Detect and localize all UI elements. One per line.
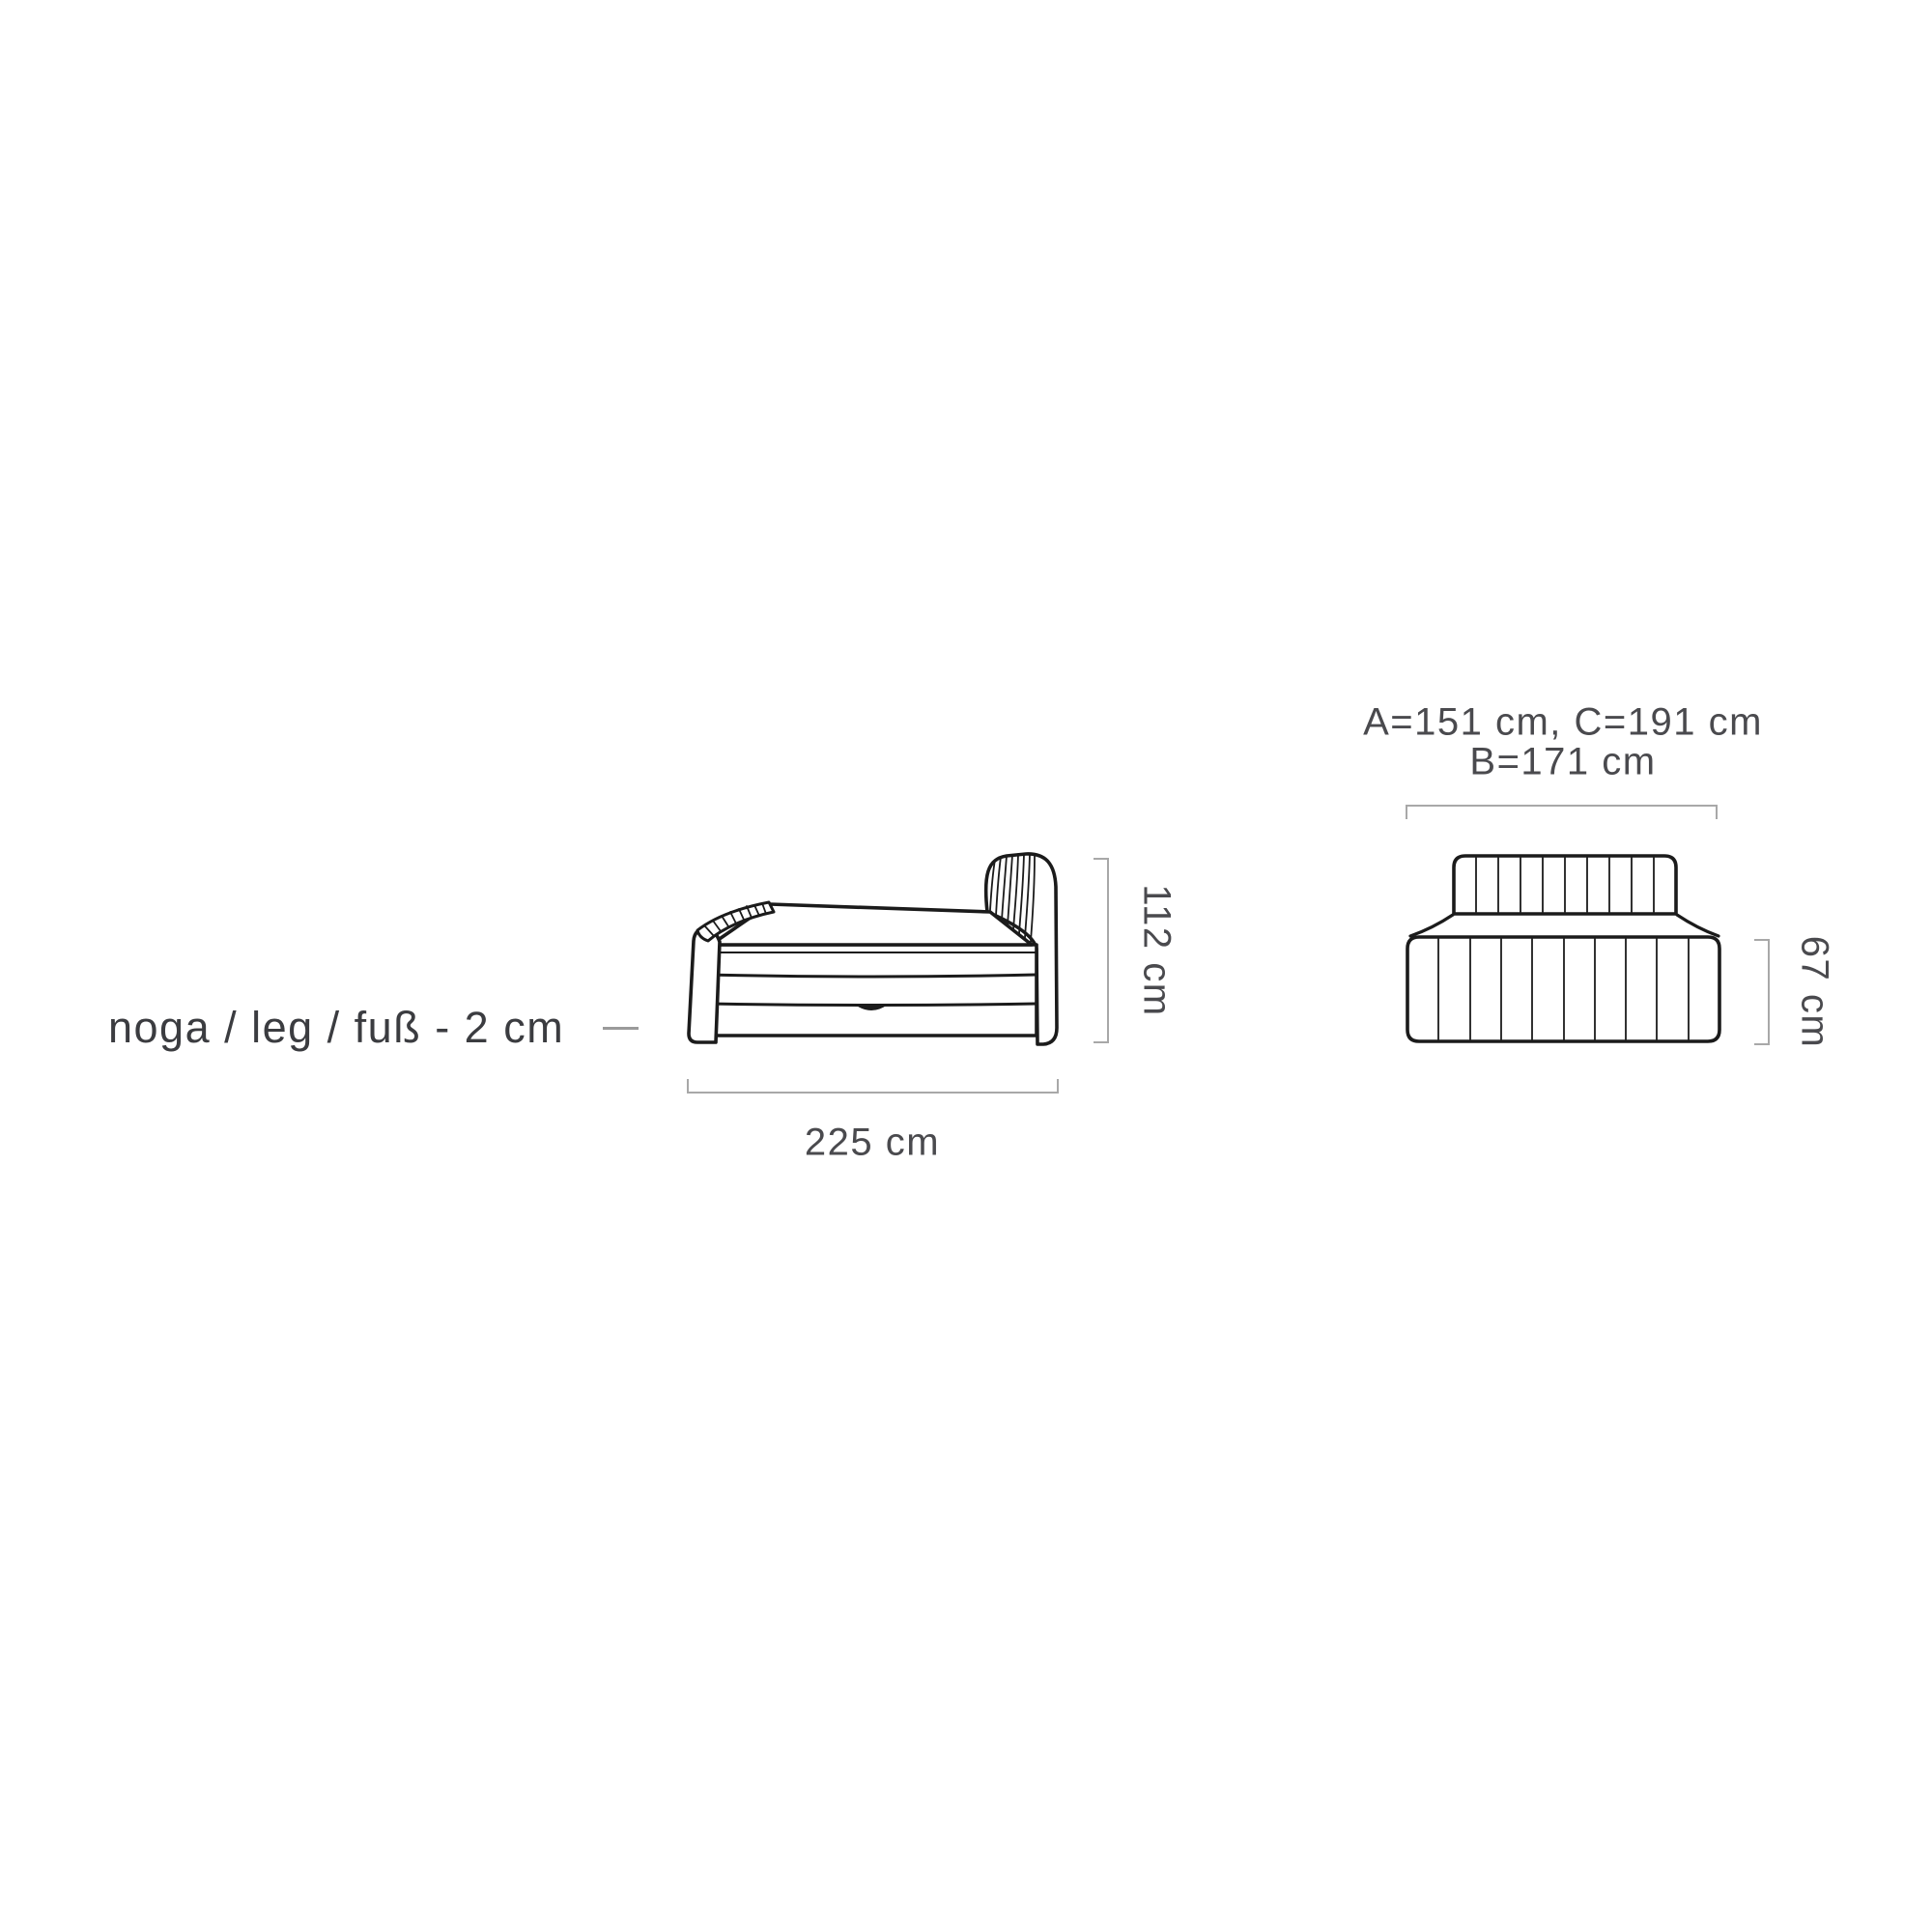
front-view-drawing [1391, 837, 1748, 1053]
side-height-label: 112 cm [1135, 884, 1179, 1016]
side-width-label: 225 cm [805, 1122, 940, 1165]
front-widths-label-line1: A=151 cm, C=191 cm [1363, 701, 1763, 745]
front-height-label: 67 cm [1793, 936, 1836, 1048]
front-headboard [1454, 856, 1676, 914]
leg-note-pointer-line [603, 1027, 639, 1030]
front-mattress-transition [1410, 915, 1719, 936]
front-base [1407, 937, 1719, 1041]
front-widths-label-line2: B=171 cm [1469, 741, 1656, 784]
side-base [709, 945, 1037, 1036]
bed-dimension-diagram: noga / leg / fuß - 2 cm [0, 0, 1932, 1932]
side-view-drawing [671, 837, 1096, 1057]
leg-note-label: noga / leg / fuß - 2 cm [108, 1003, 564, 1053]
